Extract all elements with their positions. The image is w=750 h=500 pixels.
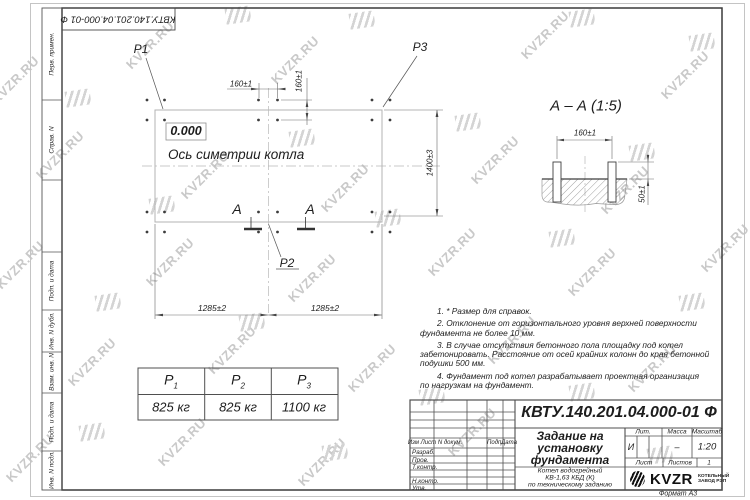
scale-value: 1:20 <box>698 442 717 453</box>
sidebar-label-inv-dubl: Инв. N дубл. <box>49 312 56 350</box>
note-line: подушки 500 мм. <box>420 359 722 368</box>
sidebar-label-perv-primen: Перв. примен. <box>49 32 56 75</box>
col-header-n-dokum: N докум. <box>438 440 462 446</box>
sidebar-label-podp-data-2: Подп. и дата <box>49 402 56 443</box>
sidebar-label-vzam-inv: Взам. инв. N <box>49 353 56 391</box>
load-point-leaders <box>146 56 417 269</box>
kvzr-logo-text: KVZR <box>650 471 693 488</box>
loads-table-value-p3: 1100 кг <box>282 400 326 415</box>
note-line: 1. * Размер для справок. <box>420 307 722 316</box>
lit-header: Лит. <box>635 429 650 436</box>
col-header-izm-list: Изм Лист <box>408 440 436 446</box>
stamp-doc-number: КВТУ.140.201.04.000-01 Ф <box>60 14 175 25</box>
note-line: по нагрузкам на фундамент. <box>420 381 722 390</box>
product-line-2: КВ-1,63 КБД (К) <box>545 475 594 482</box>
load-point-p3-label: P3 <box>413 40 428 54</box>
drawing-sheet: KVZR.RU KVZR.RU KVZR.RU KVZR.RU KVZR.RU … <box>0 0 750 500</box>
lit-value: И <box>628 442 634 452</box>
row-label-nkontr: Н.контр. <box>412 478 439 485</box>
anchor-bolt <box>608 162 616 202</box>
sidebar-label-sprav-n: Справ. N <box>49 126 56 153</box>
section-letter-right: A <box>305 201 314 217</box>
section-cut-marks <box>244 217 315 229</box>
sheets-label: Листов <box>668 459 692 466</box>
kvzr-logo-icon <box>630 471 645 487</box>
p-base: P <box>164 372 173 388</box>
product-line-1: Котел водогрейный <box>538 468 603 475</box>
loads-table-header-p3: P3 <box>297 372 311 391</box>
p-sub: 3 <box>306 381 310 390</box>
sheet-label: Лист <box>636 459 653 466</box>
product-line-3: по техническому заданию <box>528 482 612 489</box>
technical-notes: 1. * Размер для справок. 2. Отклонение о… <box>420 307 722 390</box>
title-block-doc-number: КВТУ.140.201.04.000-01 Ф <box>521 404 717 422</box>
p-base: P <box>231 372 240 388</box>
plan-view <box>142 56 443 319</box>
title-line-3: фундамента <box>531 453 609 467</box>
elevation-value: 0.000 <box>170 124 201 138</box>
drawing-linework <box>0 0 750 500</box>
sidebar-label-podp-data-1: Подп. и дата <box>49 261 56 302</box>
dim-bolt-protrusion: 50±1 <box>638 185 647 203</box>
sidebar-label-inv-podl: Инв. N подл. <box>49 451 56 489</box>
p-base: P <box>297 372 306 388</box>
load-point-p2-label: P2 <box>280 256 295 270</box>
row-label-razrab: Разраб. <box>412 449 435 456</box>
p-sub: 1 <box>173 381 177 390</box>
p-sub: 2 <box>240 381 244 390</box>
mass-header: Масса <box>667 429 686 436</box>
sheets-value: 1 <box>707 459 711 466</box>
row-label-prov: Пров. <box>412 457 429 464</box>
loads-table-header-p1: P1 <box>164 372 178 391</box>
mass-value: – <box>674 442 679 452</box>
dim-foundation-width: 1400±3 <box>426 150 435 177</box>
dim-bolt-spacing-v: 160±1 <box>295 70 304 92</box>
sheet-frame <box>31 4 745 497</box>
loads-table-header-p2: P2 <box>231 372 245 391</box>
note-line: фундамента не более 10 мм. <box>420 329 722 338</box>
dim-span-left: 1285±2 <box>198 303 226 313</box>
dim-bolt-spacing-h: 160±1 <box>230 80 252 89</box>
kvzr-logo-subtitle: КОТЕЛЬНЫЙ ЗАВОД РЭП <box>698 474 729 485</box>
col-header-data: Дата <box>501 440 517 446</box>
dim-span-right: 1285±2 <box>311 303 339 313</box>
section-title: А – А (1:5) <box>550 98 622 115</box>
loads-table-value-p1: 825 кг <box>152 400 190 415</box>
boiler-axis-label: Ось симетрии котла <box>168 147 304 162</box>
scale-header: Масштаб <box>692 429 722 436</box>
kvzr-logo-subtitle-line: ЗАВОД РЭП <box>698 479 729 484</box>
row-label-utv: Утв. <box>412 485 426 492</box>
dim-section-bolt-spacing: 160±1 <box>574 129 596 138</box>
section-letter-left: A <box>232 201 241 217</box>
row-label-tkontr: Т.контр. <box>412 464 437 471</box>
load-point-p1-label: P1 <box>134 42 149 56</box>
format-label: Формат А3 <box>659 491 697 498</box>
loads-table-value-p2: 825 кг <box>219 400 257 415</box>
anchor-bolt <box>553 162 561 202</box>
